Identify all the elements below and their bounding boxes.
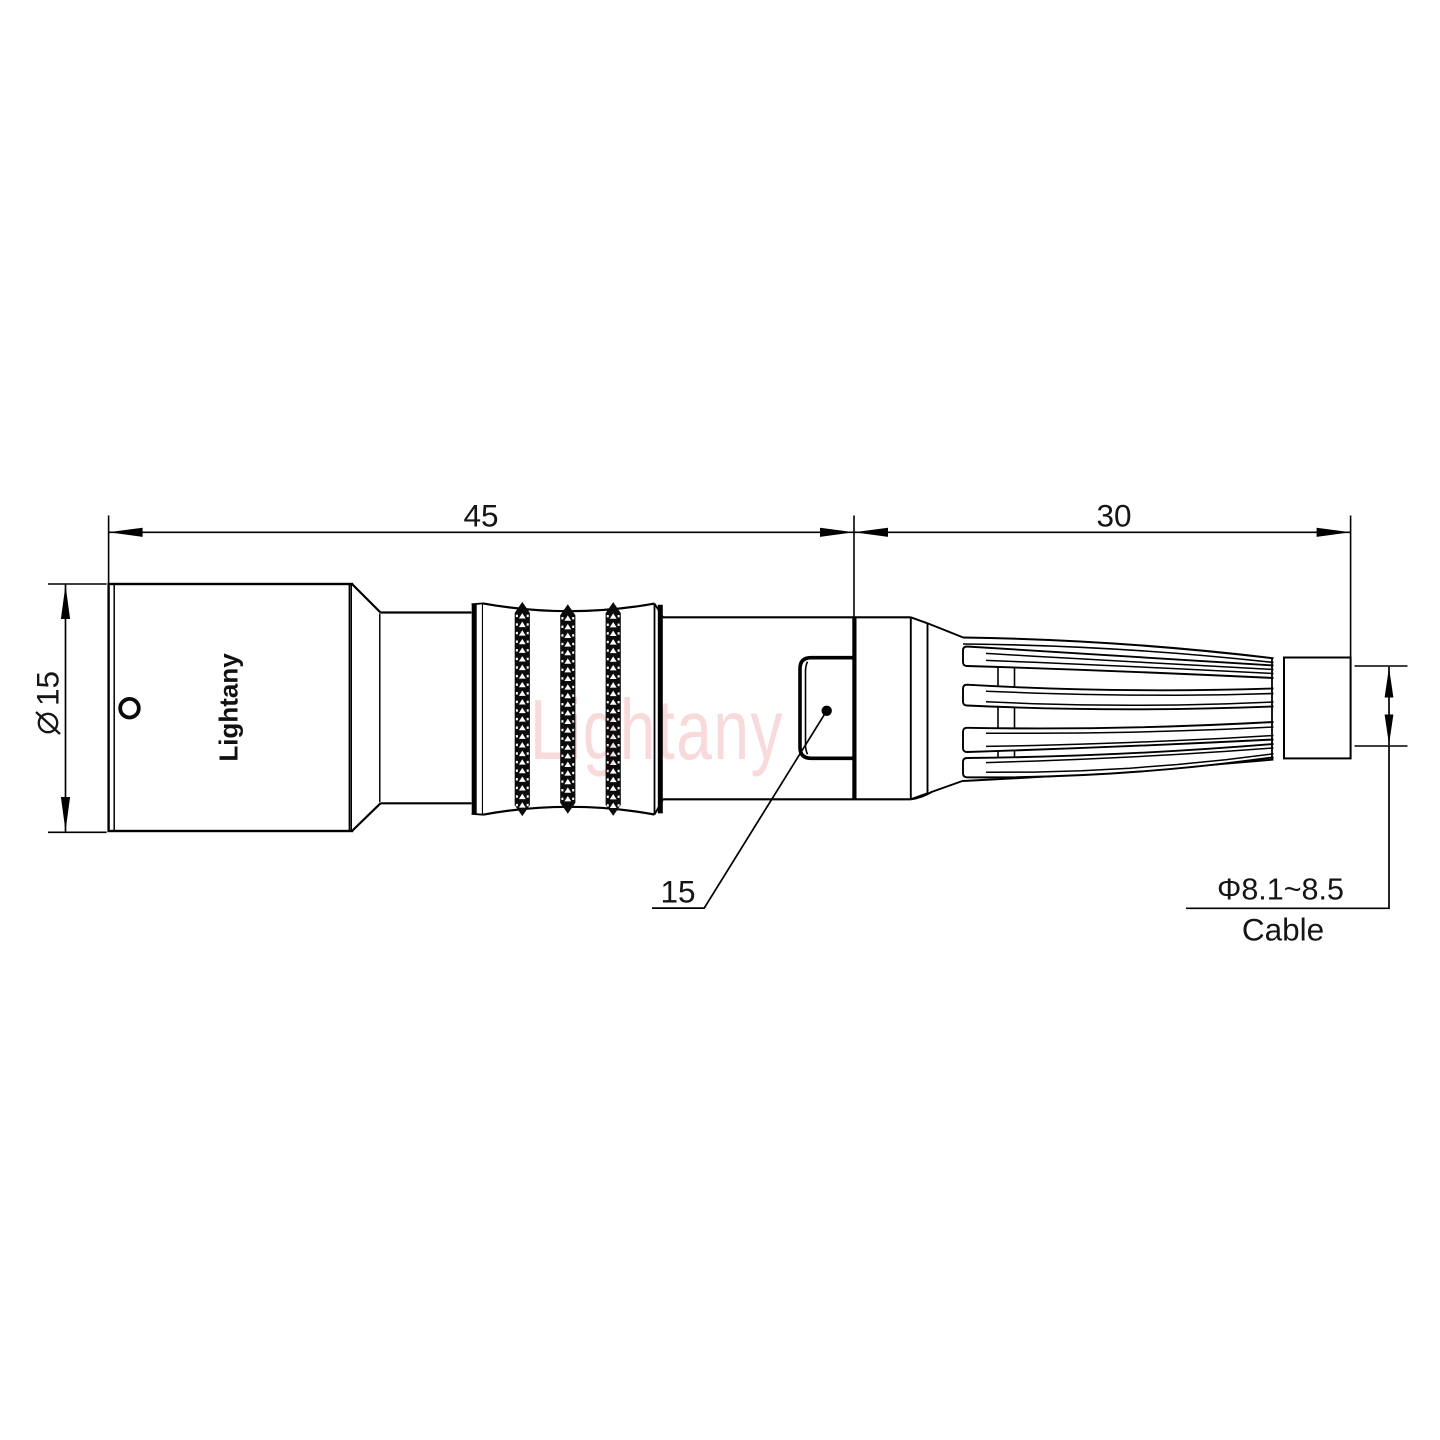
svg-text:Cable: Cable: [1242, 912, 1324, 948]
svg-text:Lightany: Lightany: [530, 682, 784, 777]
svg-text:45: 45: [463, 498, 498, 534]
svg-text:15: 15: [660, 874, 695, 910]
svg-text:30: 30: [1096, 498, 1131, 534]
svg-text:15: 15: [30, 671, 66, 706]
svg-text:Φ8.1~8.5: Φ8.1~8.5: [1217, 873, 1344, 907]
svg-text:Lightany: Lightany: [214, 653, 244, 762]
